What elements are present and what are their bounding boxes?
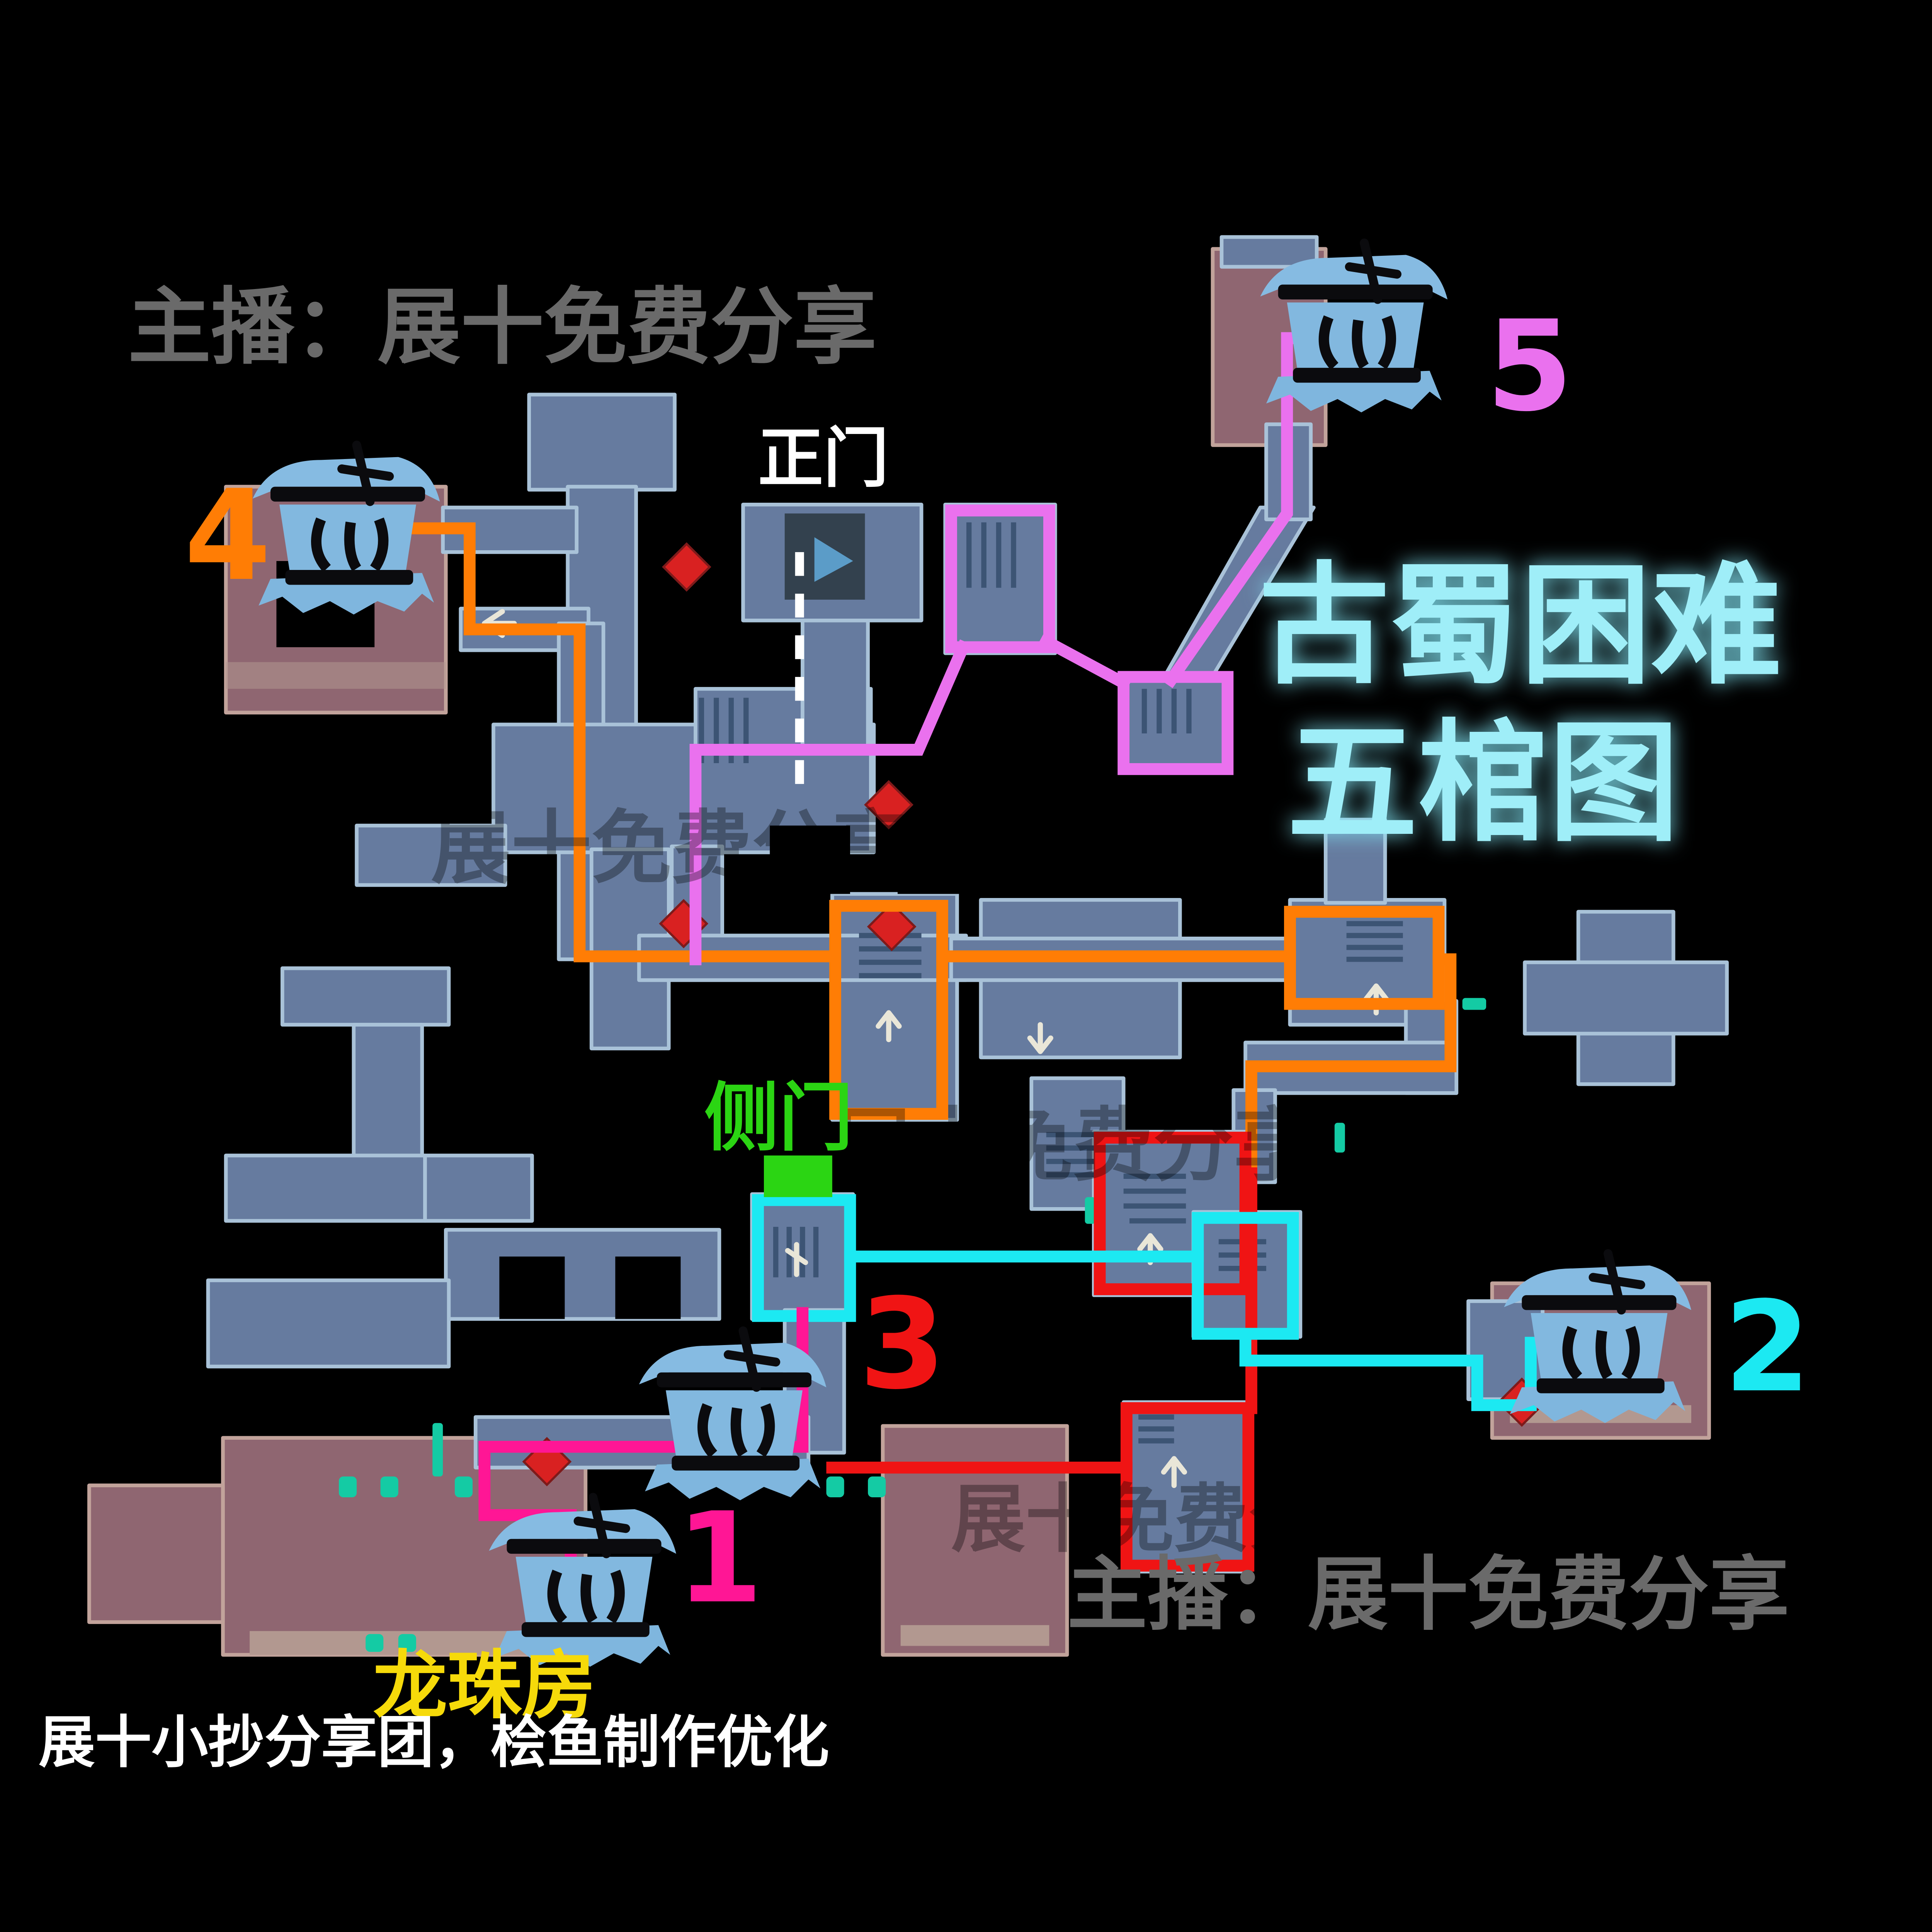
map-title-line2: 五棺图 xyxy=(1287,707,1679,859)
coffin-number-5: 5 xyxy=(1486,294,1573,439)
room-courtyard-hole xyxy=(499,1257,565,1319)
rooms-layer xyxy=(89,237,1727,1655)
red-room-floor-strip xyxy=(901,1625,1049,1646)
red-room xyxy=(89,1485,223,1622)
coffin-number-2: 2 xyxy=(1724,1275,1811,1420)
map-room xyxy=(1525,962,1727,1034)
map-title-line1: 古蜀困难 xyxy=(1259,550,1782,702)
map-canvas: 展十免费分享 展十免费分享 展十免费分享 主播：展十免费分享 主播：展十免费分享… xyxy=(0,0,1932,1932)
side-gate-label: 侧门 xyxy=(704,1075,853,1162)
map-corridor xyxy=(282,968,449,1025)
ghost-watermark: 展十免费分享 xyxy=(431,801,912,895)
main-gate-label: 正门 xyxy=(758,420,889,496)
coffin-number-4: 4 xyxy=(184,463,271,609)
coffin-number-3: 3 xyxy=(859,1272,946,1417)
map-corridor xyxy=(425,1155,532,1221)
map-room xyxy=(529,395,675,490)
side-gate-door-marker xyxy=(764,1155,832,1197)
credit-label: 展十小抄分享团，桧鱼制作优化 xyxy=(39,1710,829,1776)
map-corridor xyxy=(226,1155,425,1221)
map-room xyxy=(208,1280,449,1366)
watermark-top-left: 主播：展十免费分享 xyxy=(128,279,877,376)
room-courtyard-hole xyxy=(615,1257,680,1319)
coffin-number-1: 1 xyxy=(676,1486,763,1631)
red-room-floor-strip xyxy=(226,662,446,689)
ghost-watermark: 展十免费分享 xyxy=(832,1099,1314,1192)
map-corridor xyxy=(803,621,868,748)
watermark-bottom-right: 主播：展十免费分享 xyxy=(1067,1548,1789,1641)
